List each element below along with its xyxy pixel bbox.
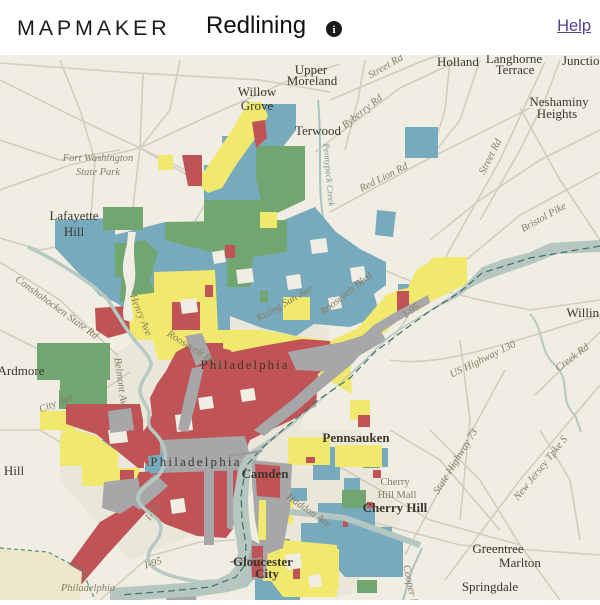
svg-text:Holland: Holland [437,55,479,69]
svg-text:Cherry: Cherry [380,477,410,488]
svg-text:Hill: Hill [4,463,25,478]
svg-text:Terwood: Terwood [295,123,342,138]
svg-text:City: City [255,566,279,581]
svg-text:Springdale: Springdale [462,579,519,594]
svg-text:Moreland: Moreland [287,73,338,88]
svg-text:Ardmore: Ardmore [0,363,45,378]
svg-text:Camden: Camden [242,466,290,481]
svg-text:Hill: Hill [64,224,85,239]
svg-text:Marlton: Marlton [499,555,541,570]
svg-text:Willow: Willow [238,84,277,99]
svg-text:Junction: Junction [562,55,600,68]
svg-text:Terrace: Terrace [496,62,535,77]
svg-text:Pennsauken: Pennsauken [322,430,390,445]
svg-text:Grove: Grove [241,98,274,113]
svg-text:Willing: Willing [566,305,600,320]
svg-text:i: i [332,24,335,36]
svg-text:Philadelphia: Philadelphia [60,583,115,594]
svg-text:Cherry Hill: Cherry Hill [363,500,428,515]
svg-text:Philadelphia: Philadelphia [150,454,241,469]
svg-text:Philadelphia: Philadelphia [201,357,290,372]
svg-text:Fort Washington: Fort Washington [62,153,134,164]
svg-text:Greentree: Greentree [472,541,523,556]
svg-text:State Park: State Park [76,167,120,178]
svg-text:Heights: Heights [537,106,577,121]
svg-text:Lafayette: Lafayette [49,208,98,223]
